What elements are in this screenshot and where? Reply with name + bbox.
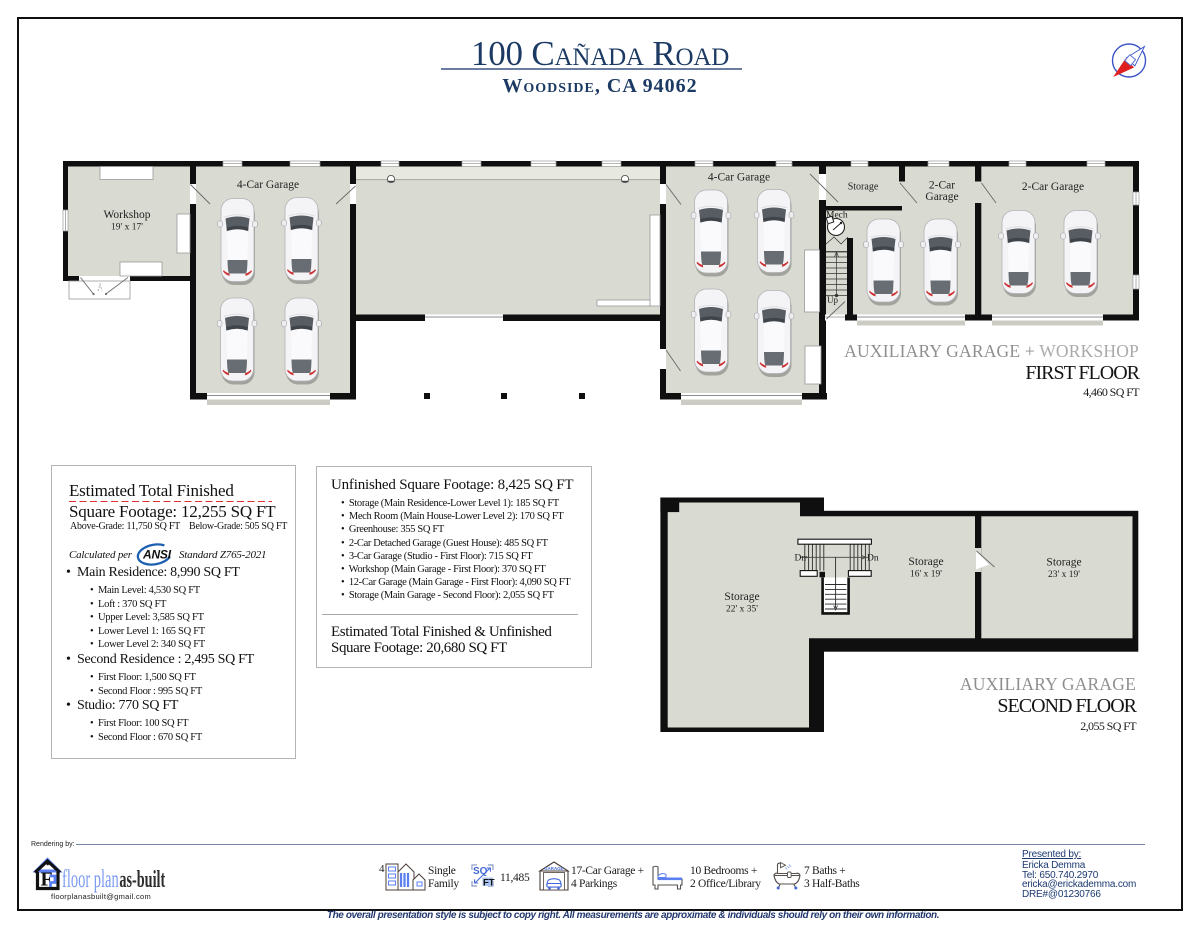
svg-text:19' x 17': 19' x 17': [111, 223, 143, 233]
svg-text:GARAGE: GARAGE: [544, 866, 563, 871]
svg-text:10 Bedrooms +: 10 Bedrooms +: [690, 865, 757, 877]
svg-text:16' x 19': 16' x 19': [910, 570, 942, 580]
svg-text:Mech: Mech: [826, 211, 848, 221]
svg-text:4-Car Garage: 4-Car Garage: [708, 172, 770, 184]
svg-text:SQ: SQ: [473, 866, 488, 877]
svg-text:Storage: Storage: [908, 556, 943, 568]
svg-text:as-built: as-built: [119, 866, 165, 893]
svg-text:23' x 19': 23' x 19': [1048, 570, 1080, 580]
svg-text:Garage: Garage: [925, 191, 958, 203]
svg-text:Storage: Storage: [1046, 557, 1081, 569]
svg-text:floorplanasbuilt@gmail.com: floorplanasbuilt@gmail.com: [51, 892, 151, 901]
svg-text:3 Half-Baths: 3 Half-Baths: [804, 878, 860, 890]
svg-text:Single: Single: [428, 865, 456, 877]
svg-text:Dn: Dn: [867, 554, 879, 564]
svg-text:Workshop: Workshop: [104, 209, 151, 221]
svg-text:2-Car Garage: 2-Car Garage: [1022, 181, 1084, 193]
svg-text:7 Baths +: 7 Baths +: [804, 865, 845, 877]
svg-text:2-Car: 2-Car: [929, 180, 955, 192]
svg-text:17-Car Garage +: 17-Car Garage +: [571, 865, 644, 877]
svg-text:F: F: [41, 869, 53, 891]
svg-text:22' x 35': 22' x 35': [726, 605, 758, 615]
svg-text:floor plan: floor plan: [62, 866, 119, 893]
svg-text:Dn: Dn: [795, 554, 807, 564]
svg-text:ANSI: ANSI: [142, 548, 172, 562]
svg-text:4 Parkings: 4 Parkings: [571, 878, 618, 890]
svg-text:Storage: Storage: [848, 182, 879, 193]
svg-text:Storage: Storage: [724, 591, 759, 603]
svg-text:11,485: 11,485: [500, 872, 530, 884]
svg-text:2 Office/Library: 2 Office/Library: [690, 878, 761, 890]
svg-text:Family: Family: [428, 878, 459, 890]
svg-text:4-Car Garage: 4-Car Garage: [237, 179, 299, 191]
svg-text:Up: Up: [827, 295, 838, 305]
svg-text:FT: FT: [483, 878, 495, 889]
svg-text:4: 4: [379, 863, 385, 875]
